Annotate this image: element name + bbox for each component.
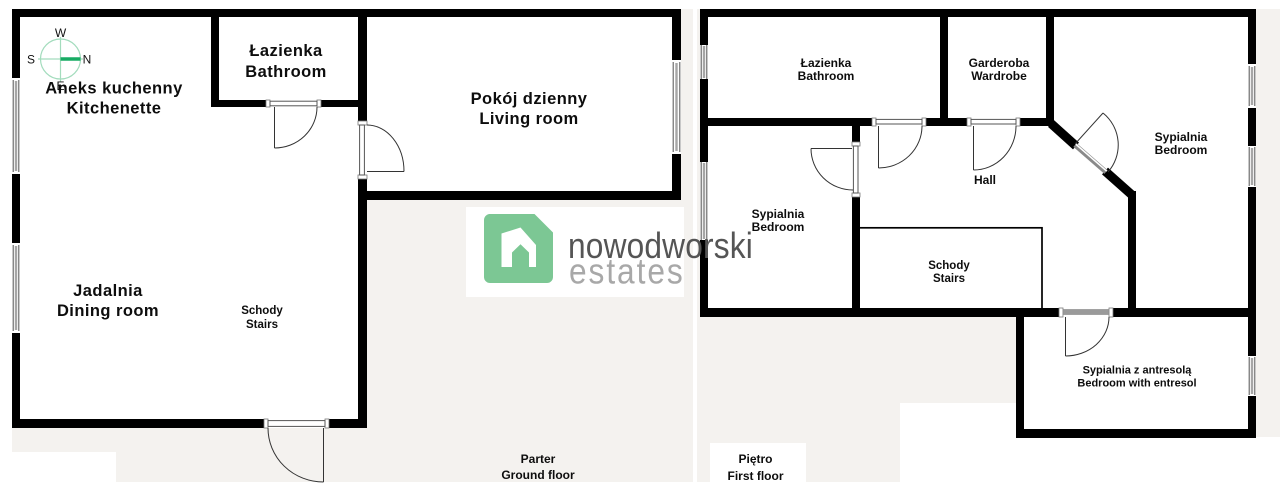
svg-text:Pokój dzienny: Pokój dzienny xyxy=(471,90,588,108)
svg-text:Bedroom: Bedroom xyxy=(1155,143,1208,157)
svg-text:N: N xyxy=(83,53,92,67)
svg-text:Sypialnia: Sypialnia xyxy=(1155,130,1208,144)
svg-text:Stairs: Stairs xyxy=(933,273,965,285)
svg-text:estates: estates xyxy=(569,252,685,292)
svg-text:Living room: Living room xyxy=(479,110,578,128)
svg-text:Jadalnia: Jadalnia xyxy=(73,282,143,300)
svg-text:S: S xyxy=(27,53,35,67)
svg-text:W: W xyxy=(55,26,67,40)
svg-text:Dining room: Dining room xyxy=(57,302,159,320)
svg-text:Sypialnia z antresolą: Sypialnia z antresolą xyxy=(1083,365,1193,377)
svg-text:First floor: First floor xyxy=(728,469,784,483)
svg-text:Parter: Parter xyxy=(521,452,556,466)
svg-text:Schody: Schody xyxy=(928,260,970,272)
svg-text:Aneks kuchenny: Aneks kuchenny xyxy=(45,80,183,98)
svg-text:Łazienka: Łazienka xyxy=(801,56,852,70)
svg-text:Piętro: Piętro xyxy=(738,452,772,466)
svg-text:Łazienka: Łazienka xyxy=(249,42,323,60)
svg-text:Ground floor: Ground floor xyxy=(501,468,575,482)
svg-text:Bedroom: Bedroom xyxy=(752,220,805,234)
svg-text:Wardrobe: Wardrobe xyxy=(971,69,1027,83)
svg-text:Bathroom: Bathroom xyxy=(245,63,327,81)
svg-text:Stairs: Stairs xyxy=(246,319,278,331)
svg-text:Bathroom: Bathroom xyxy=(798,69,855,83)
svg-text:Sypialnia: Sypialnia xyxy=(752,207,805,221)
svg-text:Hall: Hall xyxy=(974,173,996,187)
svg-text:Bedroom with entresol: Bedroom with entresol xyxy=(1077,378,1196,390)
svg-text:Schody: Schody xyxy=(241,305,283,317)
svg-text:Kitchenette: Kitchenette xyxy=(67,100,162,118)
svg-text:Garderoba: Garderoba xyxy=(969,56,1030,70)
